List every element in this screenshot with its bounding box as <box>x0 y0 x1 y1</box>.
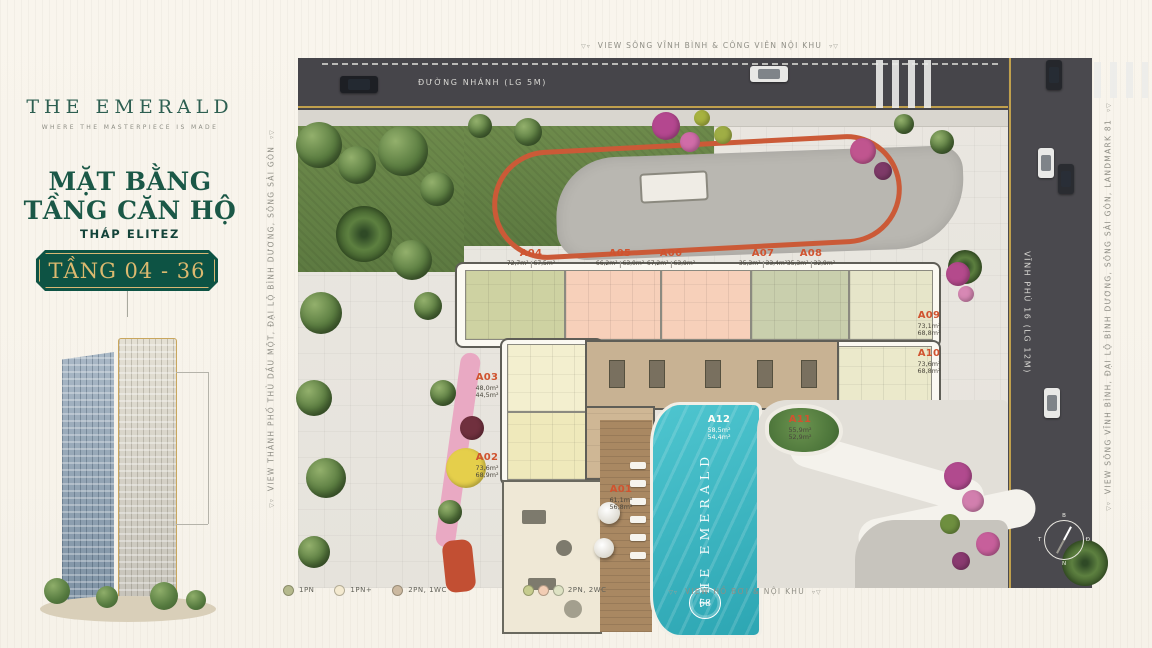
floor-range-label: TẦNG 04 - 36 <box>39 253 215 288</box>
road-top-label: ĐƯỜNG NHÁNH (LG 5M) <box>418 78 547 87</box>
elevator <box>649 360 665 388</box>
flower-bed <box>652 112 680 140</box>
tree <box>894 114 914 134</box>
legend-swatch-2pn-2wc-b <box>538 585 549 596</box>
elevator <box>609 360 625 388</box>
page-title-line2: TẦNG CĂN HỘ <box>0 196 260 225</box>
podium-tree <box>96 586 118 608</box>
floor-bracket-top <box>176 372 208 373</box>
crosswalk <box>876 60 934 108</box>
car <box>1058 164 1074 194</box>
unit-label-a09: A09 73,1m²68,8m² <box>917 310 940 337</box>
park-pavilion <box>639 170 708 204</box>
elevator <box>705 360 721 388</box>
tree <box>930 130 954 154</box>
umbrella <box>594 538 614 558</box>
tree <box>296 380 332 416</box>
floor-range-badge: TẦNG 04 - 36 <box>36 250 218 291</box>
tree <box>338 146 376 184</box>
car <box>1038 148 1054 178</box>
podium-tree <box>44 578 70 604</box>
shrub <box>714 126 732 144</box>
tree <box>296 122 342 168</box>
floor-bracket-vertical <box>208 372 209 524</box>
flower-bed <box>946 262 970 286</box>
compass-rose: B Đ N T <box>1044 520 1084 560</box>
palm-tree <box>336 206 392 262</box>
unit-label-a04: A04 72,7m²67,5m² <box>507 248 555 268</box>
flower-bed <box>952 552 970 570</box>
legend-item-1pn-plus: 1PN+ <box>334 585 372 596</box>
tower-name: THÁP ELITEZ <box>0 227 260 241</box>
unit-label-a08: A08 35,3m²32,9m² <box>787 248 835 268</box>
car <box>1044 388 1060 418</box>
unit-label-a11: A11 55,9m²52,9m² <box>788 414 811 441</box>
floor-bracket-bottom <box>176 524 208 525</box>
unit-block-a06 <box>661 270 751 340</box>
tree <box>420 172 454 206</box>
tower-elitez-render-highlighted <box>118 338 177 606</box>
view-label-top: VIEW SÔNG VĨNH BÌNH & CÔNG VIÊN NỘI KHU <box>480 41 940 50</box>
view-label-right: VIEW SÔNG VĨNH BÌNH, ĐẠI LỘ BÌNH DƯƠNG, … <box>1104 77 1113 537</box>
playground-red-area <box>460 416 484 440</box>
unit-block-a03 <box>507 344 597 412</box>
shrub <box>694 110 710 126</box>
table <box>564 600 582 618</box>
badge-connector-line <box>127 291 128 317</box>
flower-bed <box>874 162 892 180</box>
pool-brand-text: THE EMERALD <box>697 447 712 607</box>
unit-label-a02: A02 73,6m²68,9m² <box>475 452 498 479</box>
unit-label-a05: A05 66,2m²63,0m² <box>596 248 644 268</box>
brand-title: THE EMERALD <box>0 96 260 118</box>
tree <box>514 118 542 146</box>
unit-label-a12: A12 58,5m²54,4m² <box>707 414 730 441</box>
legend-item-1pn: 1PN <box>283 585 314 596</box>
car <box>340 76 378 93</box>
tree <box>392 240 432 280</box>
lounger <box>630 462 646 469</box>
tree <box>378 126 428 176</box>
crosswalk <box>1094 62 1148 98</box>
amenity-room <box>502 480 602 634</box>
view-label-bottom: VIEW HỒ BƠI & NỘI KHU <box>600 587 890 596</box>
unit-block-a07 <box>751 270 849 340</box>
unit-label-a03: A03 48,0m²44,5m² <box>475 372 498 399</box>
lounger <box>630 552 646 559</box>
compass-south: N <box>1062 561 1066 567</box>
legend-item-2pn-2wc: 2PN, 2WC <box>523 585 607 596</box>
furniture <box>556 540 572 556</box>
brand-tagline: WHERE THE MASTERPIECE IS MADE <box>0 124 260 131</box>
unit-label-a07: A07 35,3m²33,4m² <box>739 248 787 268</box>
podium-tree <box>186 590 206 610</box>
page-title-line1: MẶT BẰNG <box>0 167 260 196</box>
building-top-wing <box>455 262 941 348</box>
legend-swatch-2pn-1wc <box>392 585 403 596</box>
lounger <box>630 534 646 541</box>
unit-block-a02 <box>507 412 597 480</box>
compass-north: B <box>1062 513 1066 519</box>
car <box>750 66 788 82</box>
legend-swatch-1pn <box>283 585 294 596</box>
flower-bed <box>944 462 972 490</box>
legend: 1PN 1PN+ 2PN, 1WC 2PN, 2WC <box>283 582 606 598</box>
stairs <box>801 360 817 388</box>
floorplan-page: THE EMERALD WHERE THE MASTERPIECE IS MAD… <box>0 0 1152 648</box>
view-label-left: VIEW THÀNH PHỐ THỦ DẦU MỘT, ĐẠI LỘ BÌNH … <box>267 109 276 529</box>
unit-label-a06: A06 67,2m²63,9m² <box>647 248 695 268</box>
tree <box>414 292 442 320</box>
unit-label-a01: A01 61,1m²56,8m² <box>609 484 632 511</box>
legend-swatch-2pn-2wc-c <box>553 585 564 596</box>
flower-bed <box>962 490 984 512</box>
furniture <box>522 510 546 524</box>
tree <box>298 536 330 568</box>
tower-left-render <box>62 352 114 604</box>
pool-deck <box>600 420 652 632</box>
unit-label-a10: A10 73,6m²68,8m² <box>917 348 940 375</box>
compass-east: Đ <box>1086 537 1090 543</box>
elevator <box>757 360 773 388</box>
swimming-pool: THE EMERALD 68 <box>650 402 762 638</box>
podium-tree <box>150 582 178 610</box>
tree <box>430 380 456 406</box>
page-title: MẶT BẰNG TẦNG CĂN HỘ <box>0 167 260 225</box>
unit-block-a05 <box>565 270 661 340</box>
flower-bed <box>976 532 1000 556</box>
road-right-label: VĨNH PHÚ 16 (LG 12M) <box>1023 228 1032 398</box>
tree <box>300 292 342 334</box>
compass-needle <box>1056 526 1072 553</box>
shrub <box>940 514 960 534</box>
tree <box>306 458 346 498</box>
legend-swatch-2pn-2wc-a <box>523 585 534 596</box>
legend-item-2pn-1wc: 2PN, 1WC <box>392 585 447 596</box>
lounger <box>630 516 646 523</box>
legend-swatch-1pn-plus <box>334 585 345 596</box>
unit-block-a04 <box>465 270 565 340</box>
flower-bed <box>850 138 876 164</box>
tree <box>438 500 462 524</box>
compass-west: T <box>1038 537 1041 543</box>
tree <box>468 114 492 138</box>
flower-bed <box>680 132 700 152</box>
flower-bed <box>958 286 974 302</box>
car <box>1046 60 1062 90</box>
